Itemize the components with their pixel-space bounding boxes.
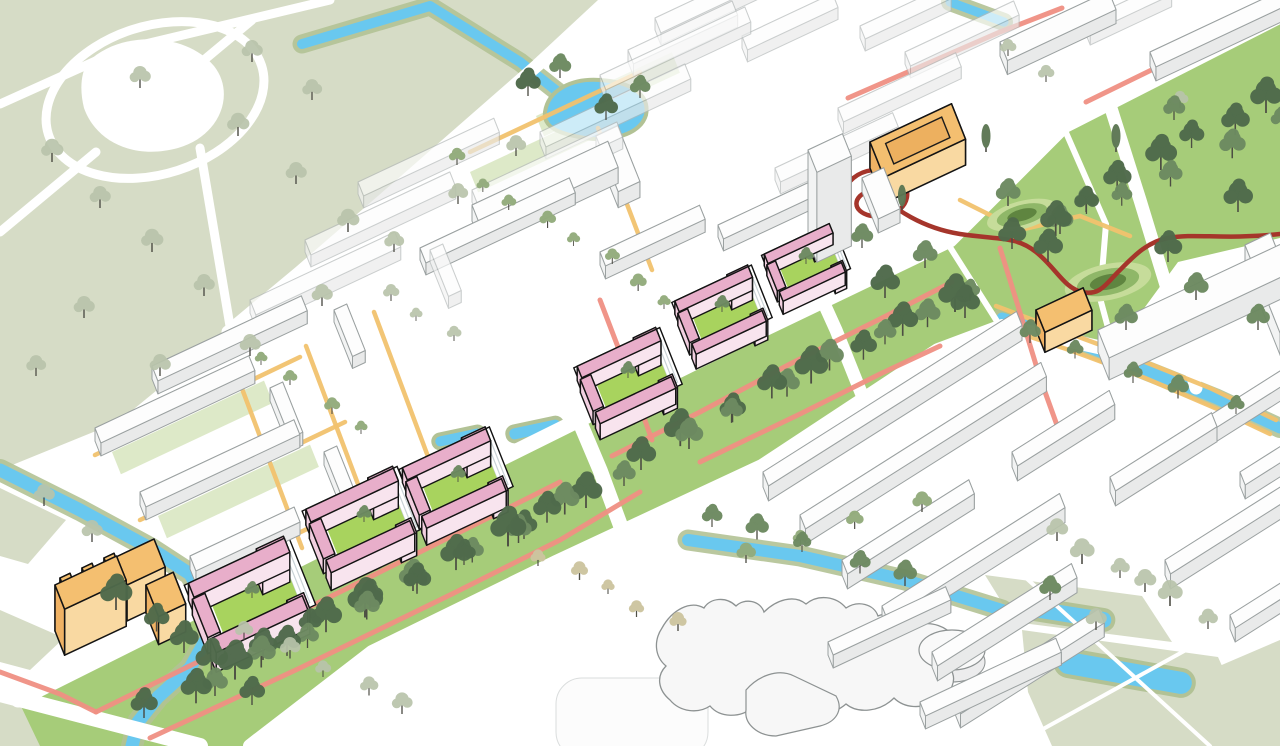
tree <box>283 370 297 385</box>
tree <box>1038 65 1054 82</box>
tree <box>410 308 423 321</box>
tree <box>982 124 991 152</box>
tree <box>601 579 614 594</box>
existing-slab-building <box>1165 474 1280 589</box>
tree <box>567 232 580 246</box>
existing-slab-building <box>742 0 838 62</box>
existing-slab-building <box>1110 413 1217 506</box>
tree <box>1070 538 1095 564</box>
tree <box>571 561 588 580</box>
tree <box>702 504 723 527</box>
amber-path <box>374 312 436 478</box>
tree <box>1111 558 1130 578</box>
tree <box>255 352 268 365</box>
tree <box>657 295 670 309</box>
masterplan-canvas <box>0 0 1280 746</box>
park-field <box>81 39 223 152</box>
tree <box>630 273 647 291</box>
tree <box>851 223 873 248</box>
tree <box>746 513 769 539</box>
tree <box>355 421 368 434</box>
tree <box>1134 569 1156 592</box>
masterplan-illustration <box>0 0 1280 746</box>
tree <box>383 284 399 301</box>
existing-slab-building <box>334 304 365 368</box>
tree <box>1198 609 1218 629</box>
tree <box>392 692 413 714</box>
tree <box>447 326 462 341</box>
tree <box>360 676 378 695</box>
existing-slab-building <box>1230 546 1280 643</box>
